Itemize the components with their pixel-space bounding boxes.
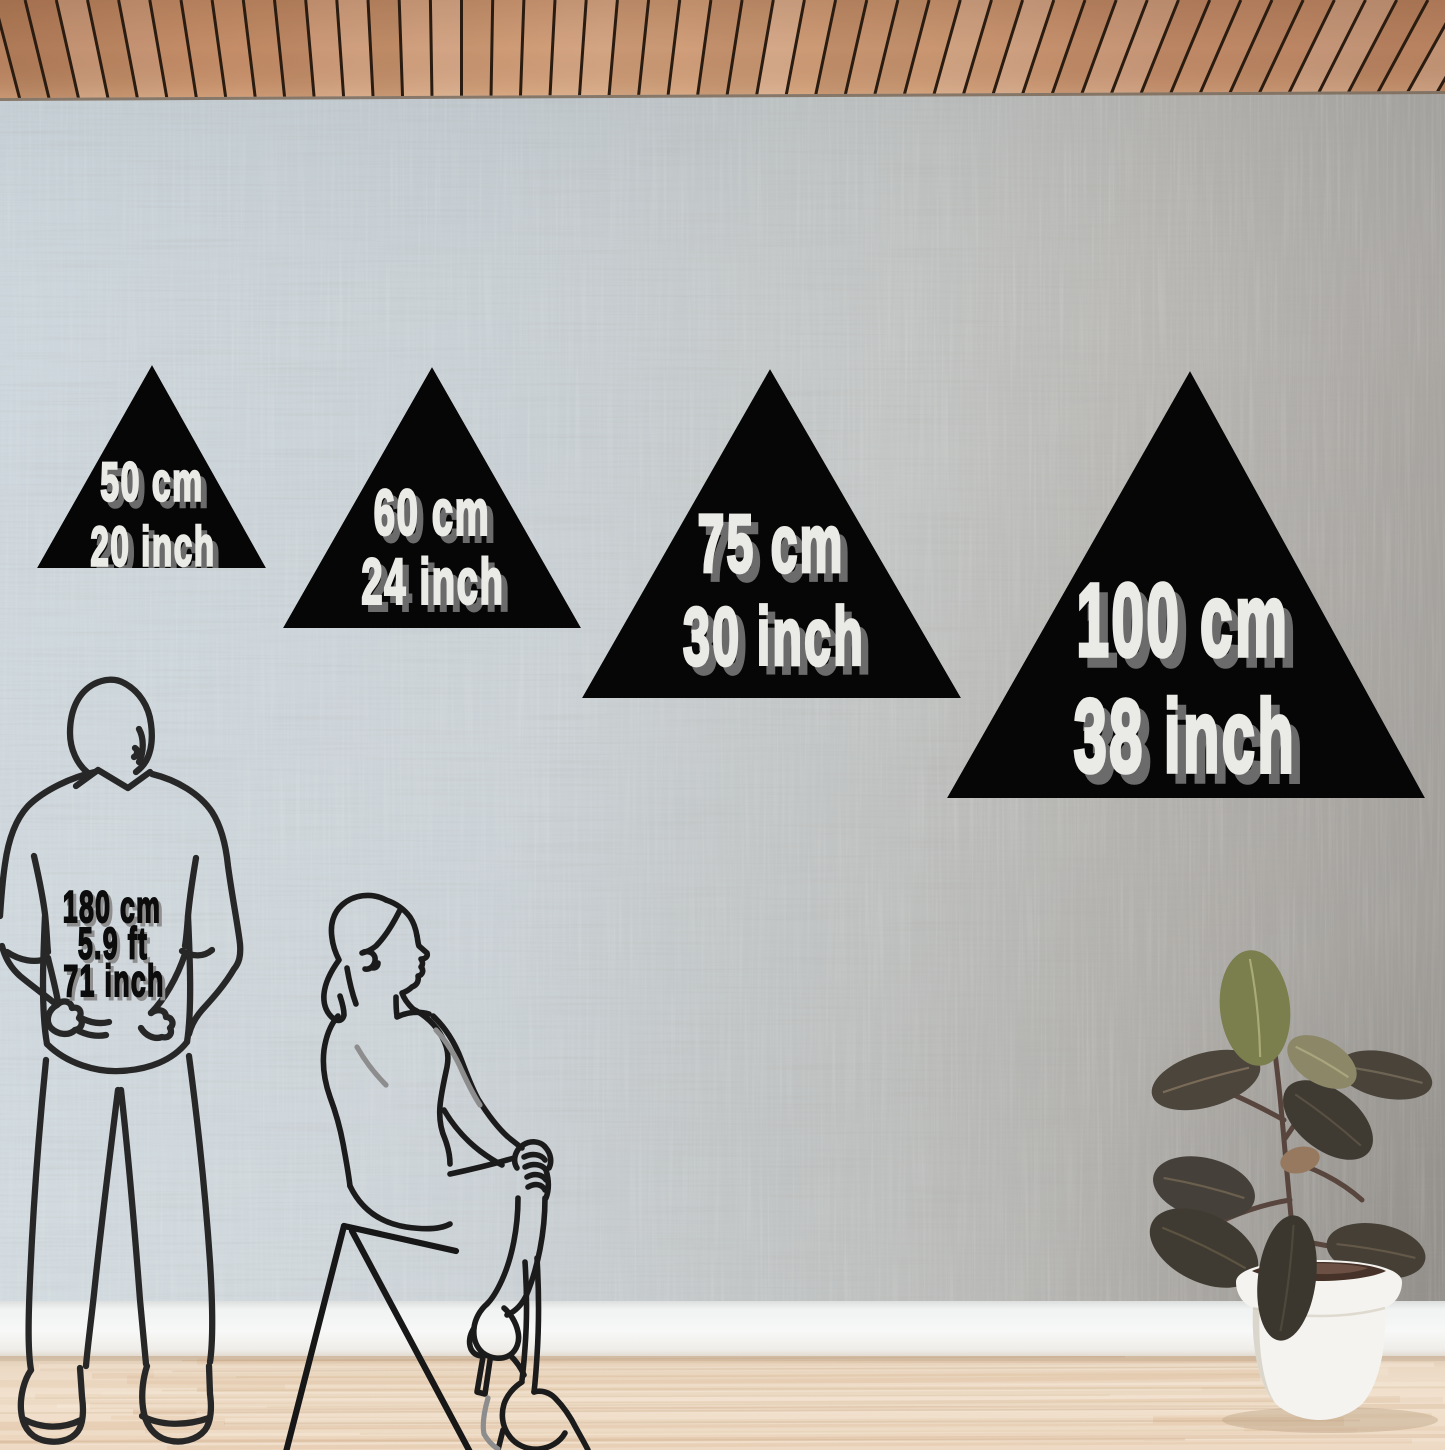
svg-text:38 inch: 38 inch [1074, 678, 1297, 793]
svg-text:60 cm: 60 cm [374, 477, 491, 549]
svg-text:30 inch: 30 inch [683, 591, 865, 682]
svg-text:75 cm: 75 cm [698, 498, 845, 590]
svg-text:50 cm: 50 cm [100, 451, 204, 512]
svg-text:100 cm: 100 cm [1077, 562, 1290, 678]
svg-text:24 inch: 24 inch [361, 546, 504, 618]
svg-text:71 inch: 71 inch [63, 956, 164, 1006]
